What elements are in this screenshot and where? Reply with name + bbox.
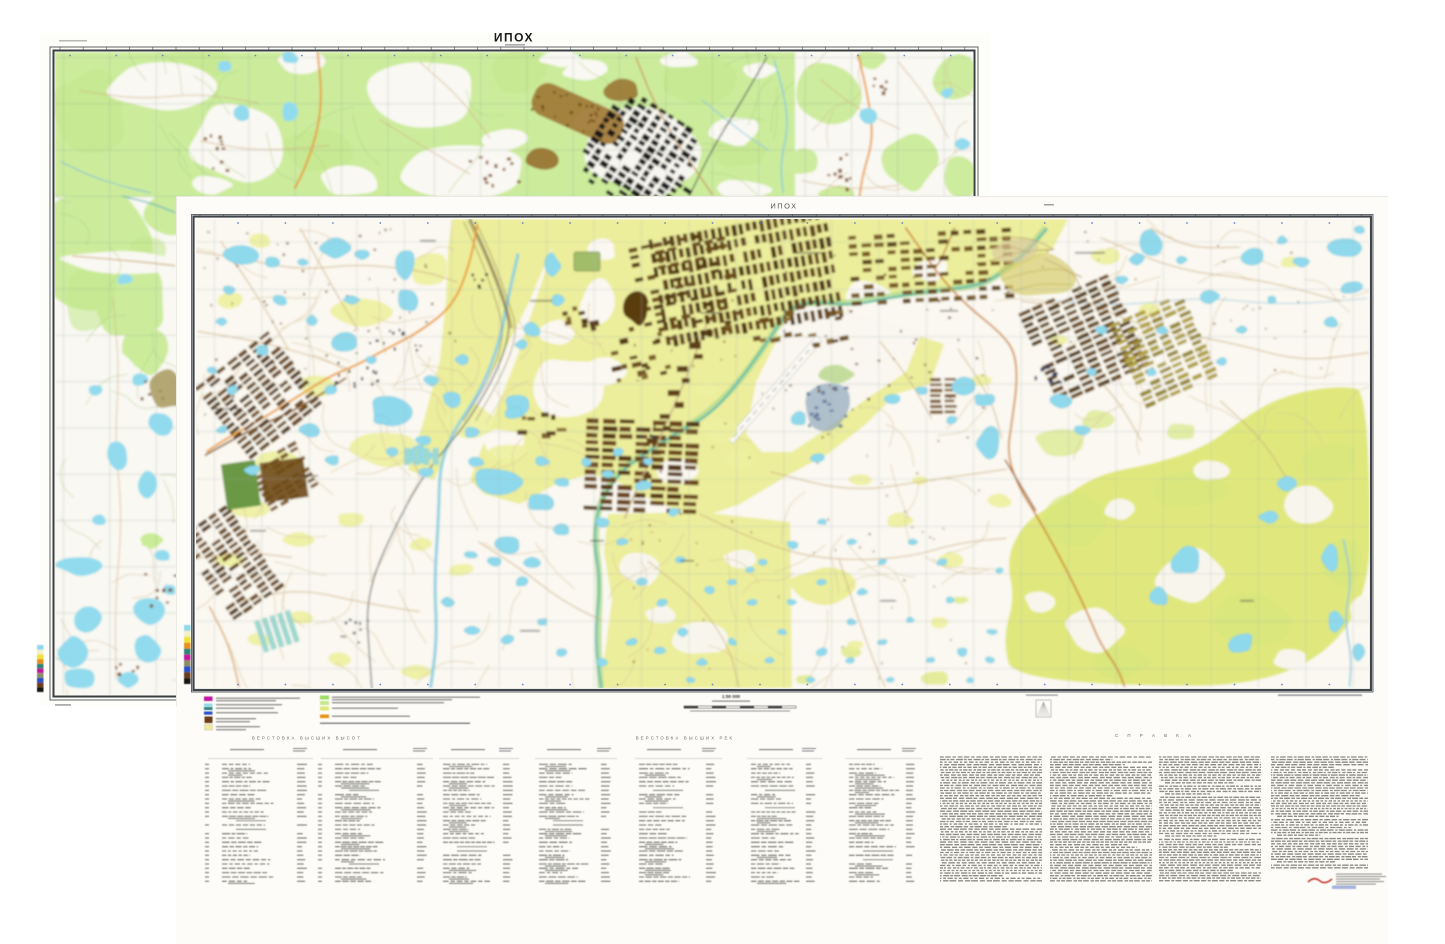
svg-text:ВЕРСТОВКА ВЫСШИХ РЕК: ВЕРСТОВКА ВЫСШИХ РЕК bbox=[636, 736, 734, 741]
svg-text:1:50 000: 1:50 000 bbox=[722, 694, 741, 699]
svg-text:ИПОХ: ИПОХ bbox=[770, 202, 797, 211]
svg-text:С П Р А В К А: С П Р А В К А bbox=[1115, 733, 1195, 738]
svg-text:ИПОХ: ИПОХ bbox=[494, 31, 534, 45]
svg-text:ВЕРСТОВКА ВЫСШИХ ВЫСОТ: ВЕРСТОВКА ВЫСШИХ ВЫСОТ bbox=[252, 736, 362, 741]
